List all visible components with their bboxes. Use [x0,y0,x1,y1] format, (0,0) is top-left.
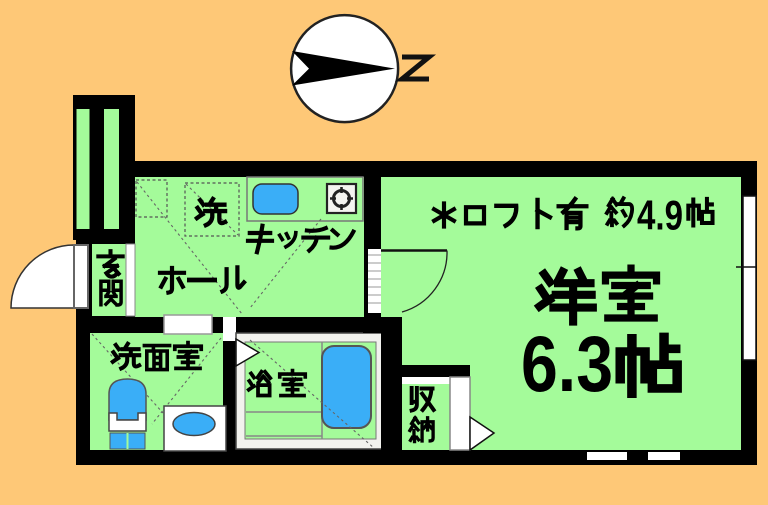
svg-text:4.9: 4.9 [637,192,683,239]
svg-text:6.3: 6.3 [521,319,613,408]
